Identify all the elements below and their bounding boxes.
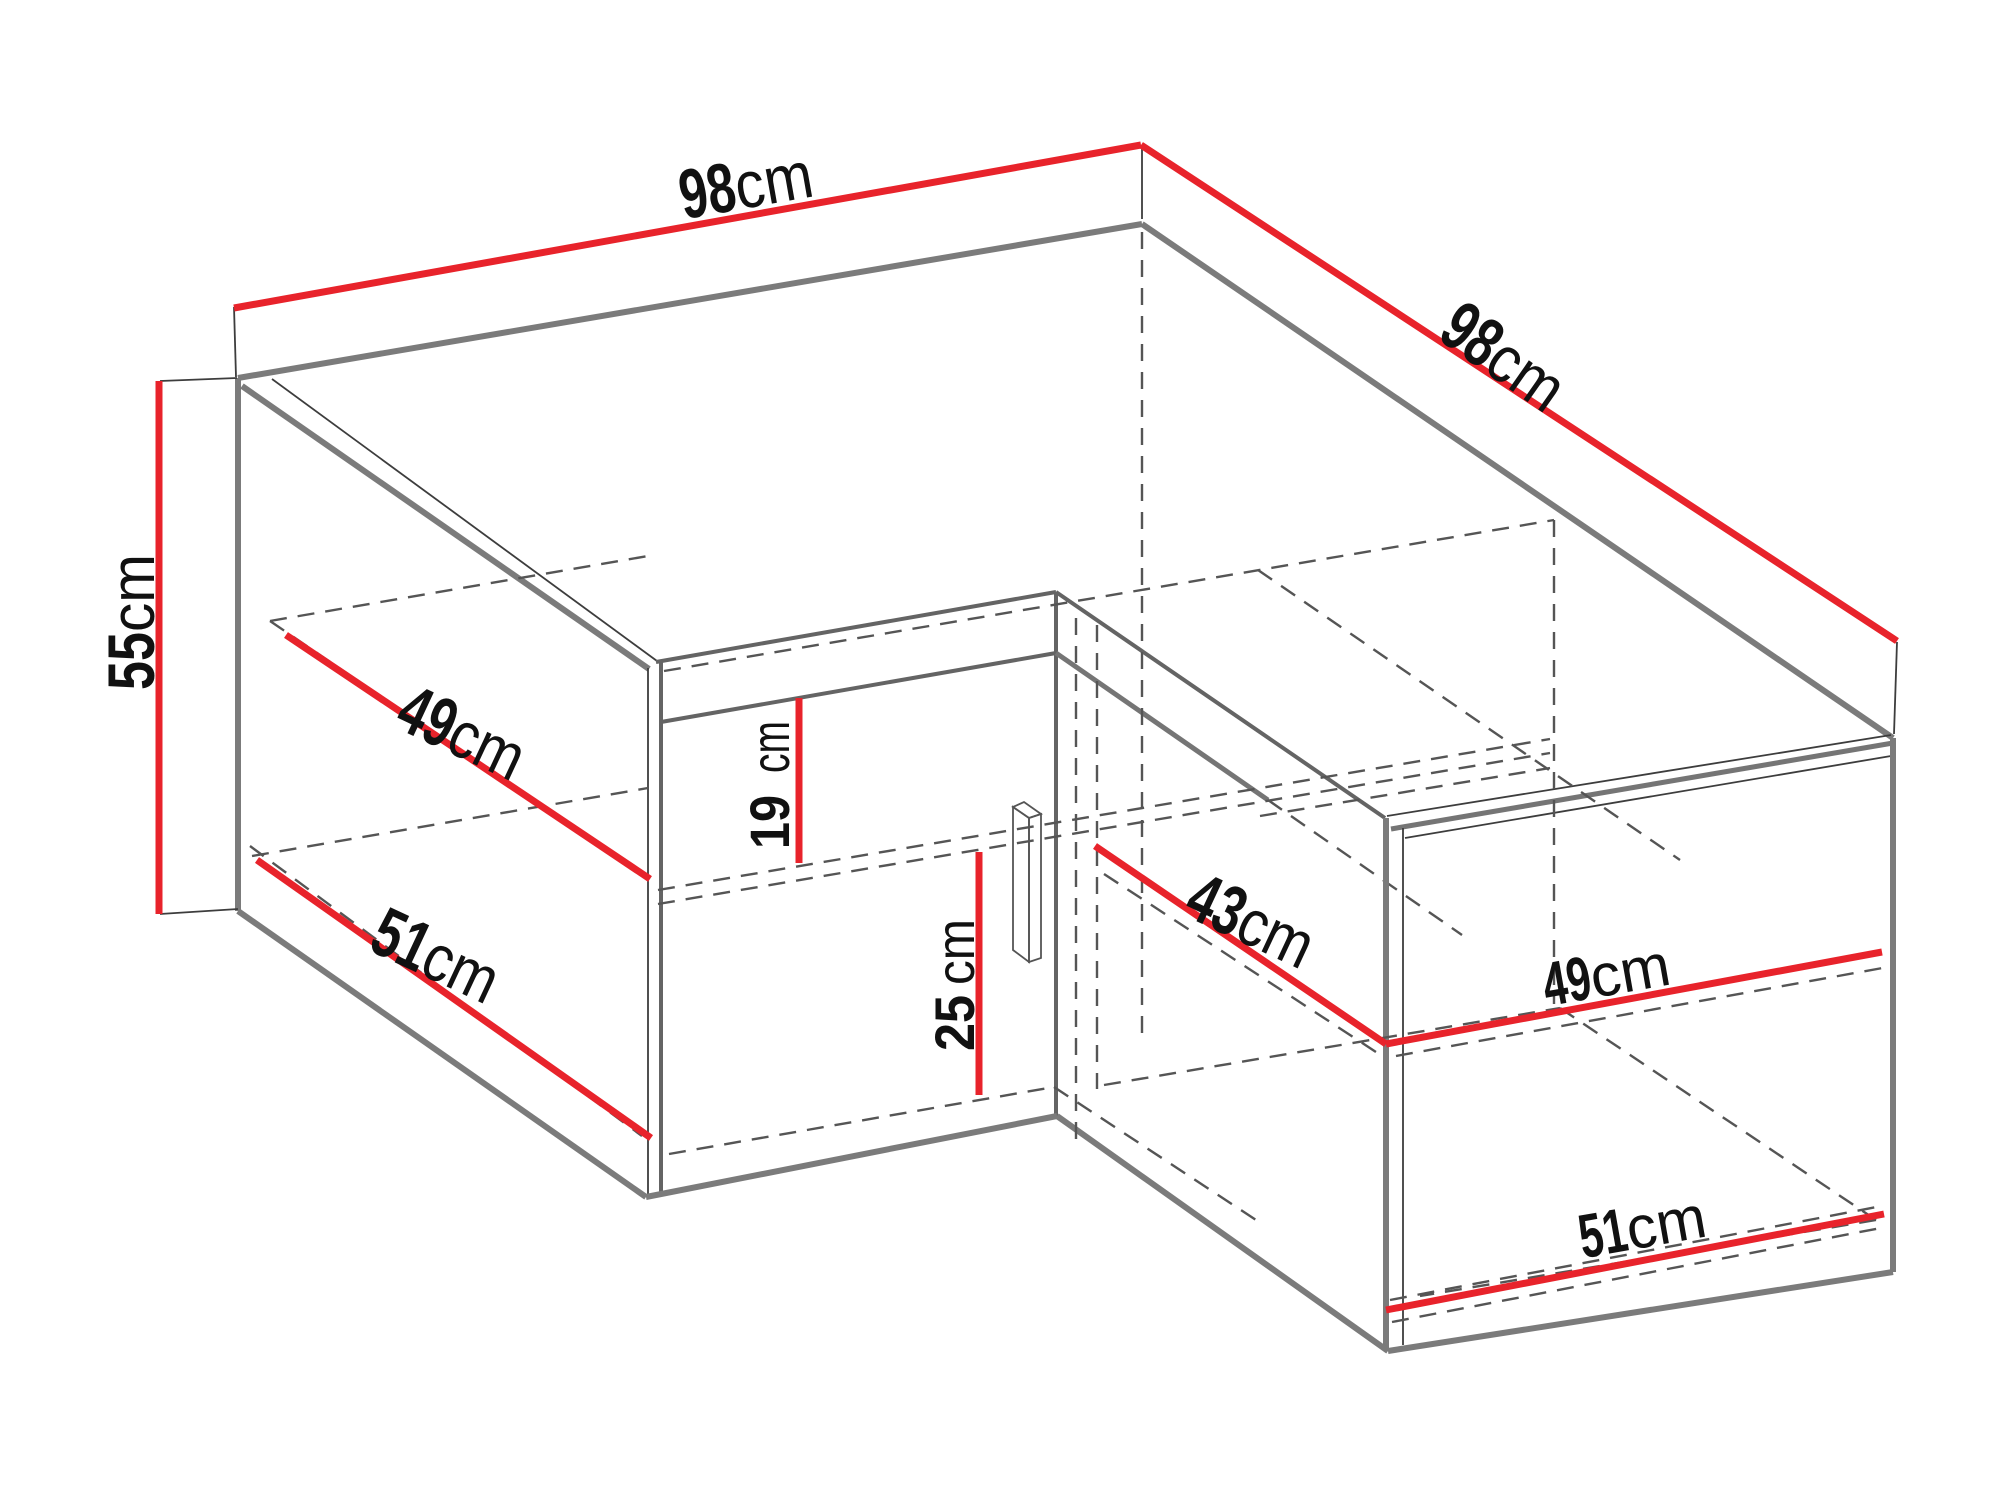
svg-text:55cm: 55cm [94,554,168,690]
svg-text:25cm: 25cm [923,919,986,1051]
